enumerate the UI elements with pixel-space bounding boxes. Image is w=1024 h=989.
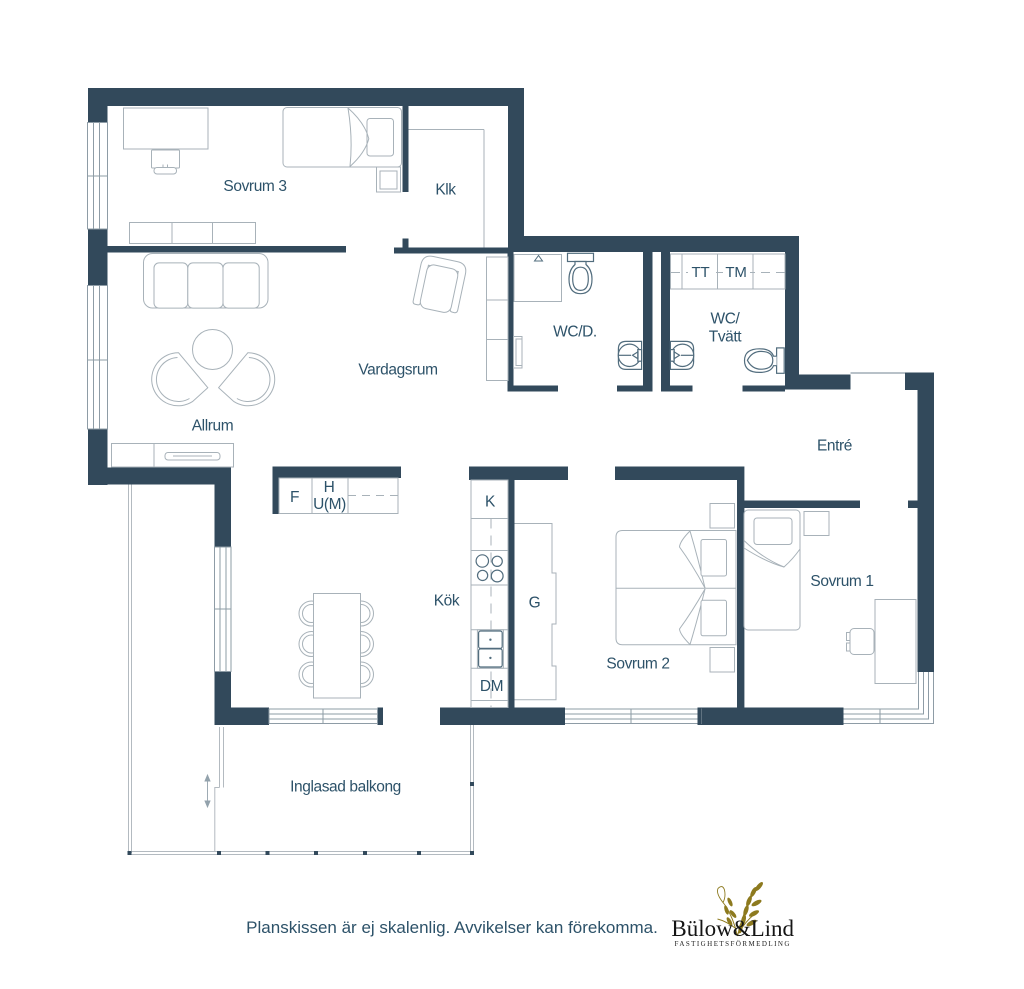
svg-text:Klk: Klk: [435, 182, 456, 199]
svg-text:G: G: [529, 595, 541, 612]
svg-text:WC/: WC/: [711, 311, 741, 328]
svg-text:Sovrum 1: Sovrum 1: [810, 573, 873, 590]
svg-text:DM: DM: [480, 678, 503, 695]
svg-text:Inglasad balkong: Inglasad balkong: [290, 779, 401, 796]
svg-text:Planskissen är ej skalenlig. A: Planskissen är ej skalenlig. Avvikelser …: [246, 918, 658, 937]
svg-text:U(M): U(M): [313, 496, 346, 513]
svg-text:WC/D.: WC/D.: [553, 324, 597, 341]
svg-text:Sovrum 3: Sovrum 3: [223, 178, 286, 195]
svg-text:H: H: [324, 479, 335, 496]
svg-text:Allrum: Allrum: [192, 418, 234, 435]
svg-text:TT: TT: [692, 264, 710, 281]
svg-text:TM: TM: [725, 264, 746, 281]
svg-text:Kök: Kök: [434, 593, 460, 610]
svg-text:Vardagsrum: Vardagsrum: [358, 362, 437, 379]
svg-text:Entré: Entré: [817, 438, 852, 455]
svg-text:F: F: [290, 489, 299, 506]
svg-text:Sovrum 2: Sovrum 2: [606, 656, 669, 673]
svg-text:Tvätt: Tvätt: [709, 329, 743, 346]
svg-text:Bülow&Lind: Bülow&Lind: [671, 916, 794, 941]
svg-text:K: K: [485, 494, 496, 511]
svg-text:FASTIGHETSFÖRMEDLING: FASTIGHETSFÖRMEDLING: [675, 940, 791, 948]
